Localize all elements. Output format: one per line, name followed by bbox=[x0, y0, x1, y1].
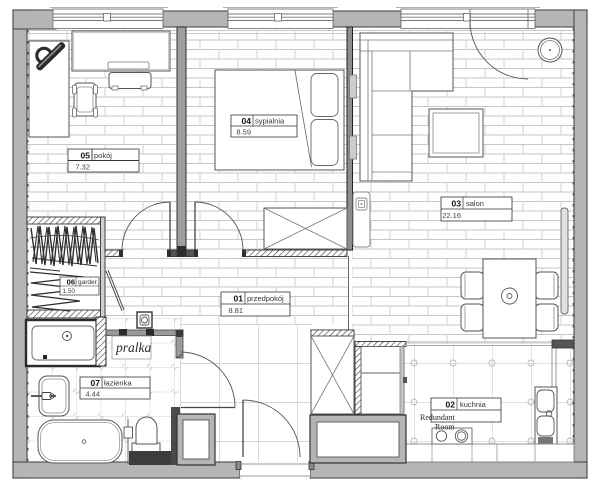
svg-text:05: 05 bbox=[81, 151, 91, 161]
svg-text:przedpokój: przedpokój bbox=[247, 294, 284, 303]
svg-text:02: 02 bbox=[446, 400, 456, 410]
svg-text:garder.: garder. bbox=[78, 279, 98, 286]
svg-text:7.32: 7.32 bbox=[75, 163, 90, 172]
svg-text:Room: Room bbox=[435, 423, 455, 432]
svg-text:8.59: 8.59 bbox=[236, 128, 251, 137]
svg-text:07: 07 bbox=[91, 378, 101, 388]
svg-text:pokój: pokój bbox=[94, 151, 112, 160]
svg-text:22.16: 22.16 bbox=[442, 211, 461, 220]
svg-text:8.81: 8.81 bbox=[228, 306, 243, 315]
svg-text:4.44: 4.44 bbox=[85, 390, 100, 399]
svg-text:kuchnia: kuchnia bbox=[460, 400, 487, 409]
svg-text:sypialnia: sypialnia bbox=[255, 117, 285, 126]
svg-text:1.50: 1.50 bbox=[62, 288, 75, 295]
svg-text:łazienka: łazienka bbox=[104, 379, 132, 388]
svg-text:01: 01 bbox=[234, 294, 244, 304]
svg-text:pralka: pralka bbox=[115, 340, 151, 355]
svg-text:Redundant: Redundant bbox=[420, 413, 455, 422]
svg-text:06: 06 bbox=[67, 278, 75, 287]
svg-text:04: 04 bbox=[242, 116, 252, 126]
svg-text:salon: salon bbox=[466, 199, 484, 208]
svg-text:03: 03 bbox=[452, 199, 462, 209]
